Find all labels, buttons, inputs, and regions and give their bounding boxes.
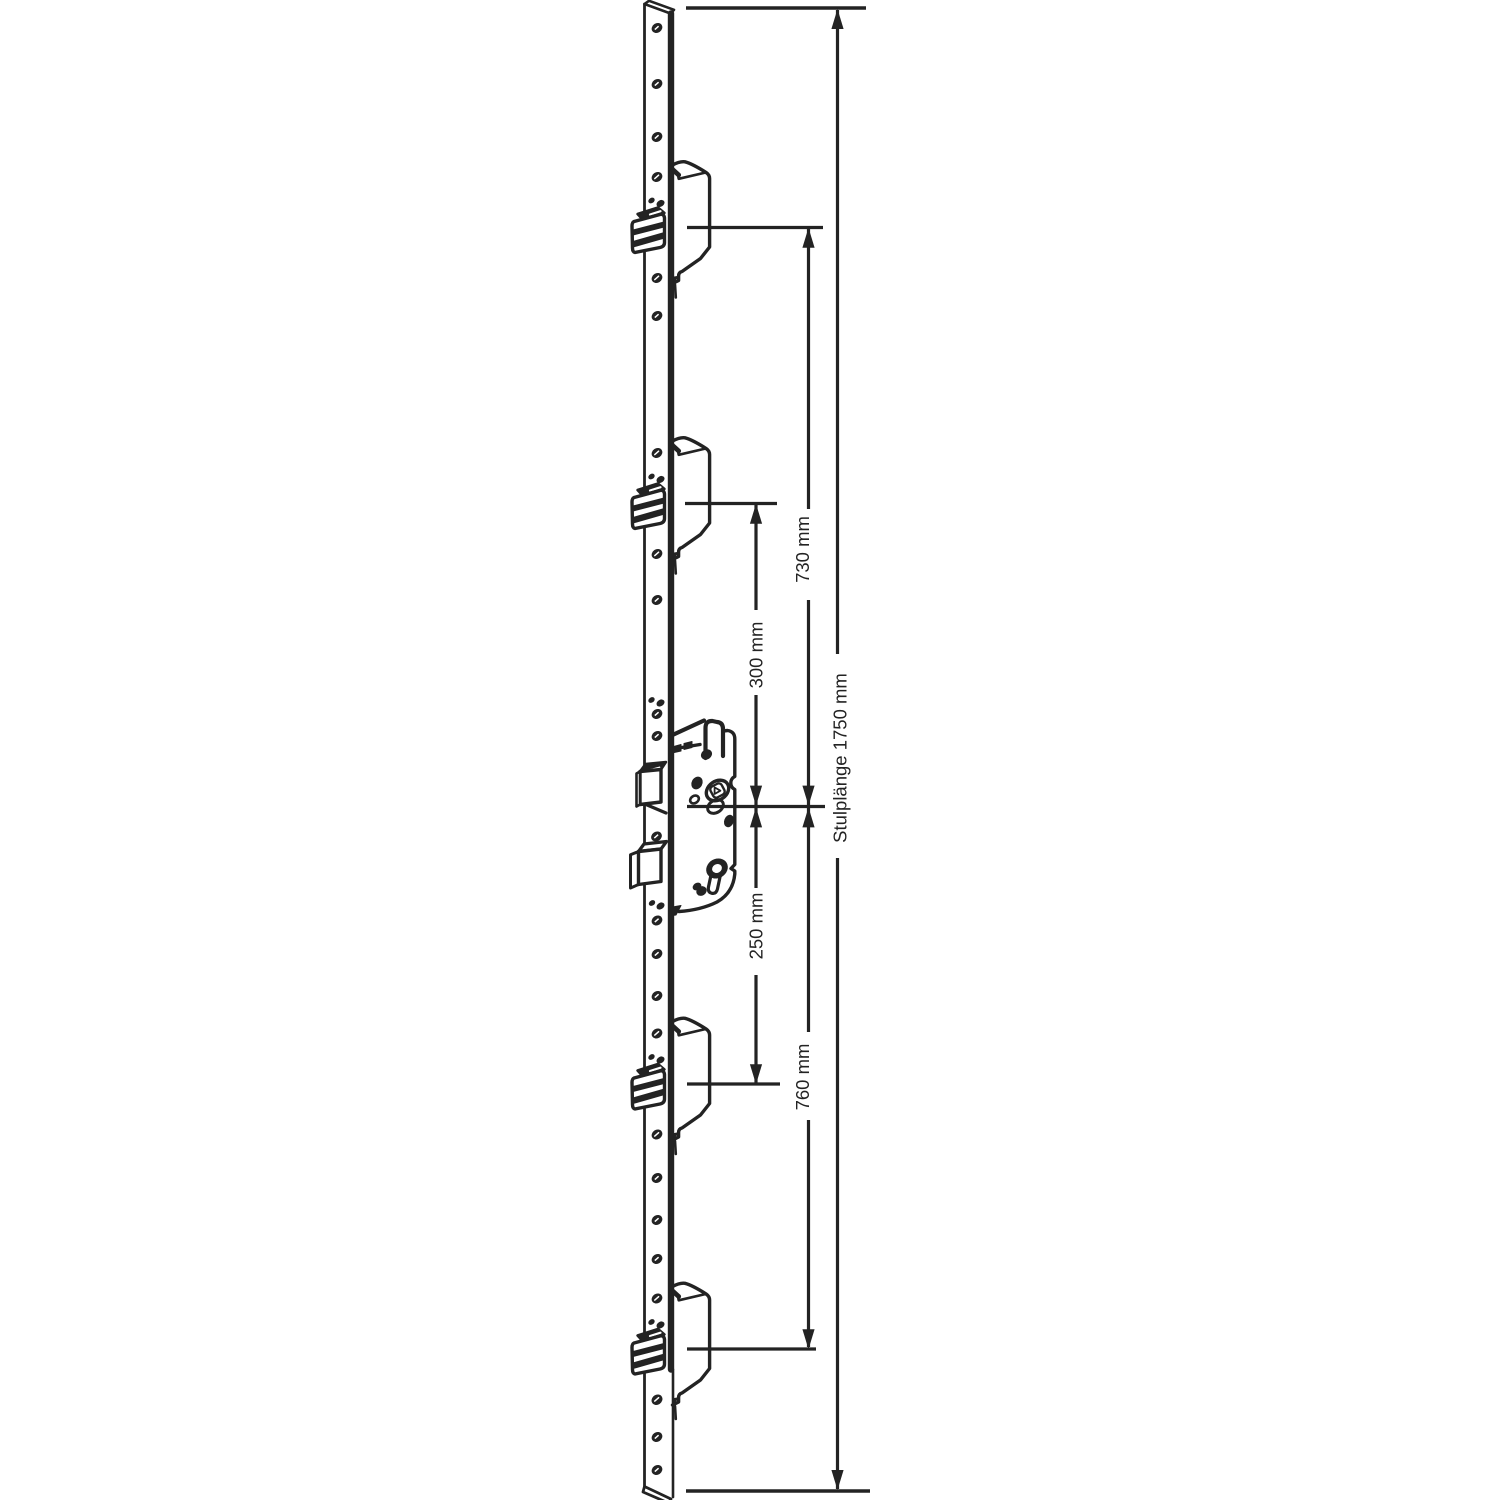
svg-text:Stulplänge 1750 mm: Stulplänge 1750 mm <box>830 673 851 843</box>
svg-text:730 mm: 730 mm <box>792 516 813 583</box>
svg-text:300 mm: 300 mm <box>746 622 767 689</box>
svg-text:760 mm: 760 mm <box>792 1044 813 1111</box>
svg-text:250 mm: 250 mm <box>746 893 767 960</box>
